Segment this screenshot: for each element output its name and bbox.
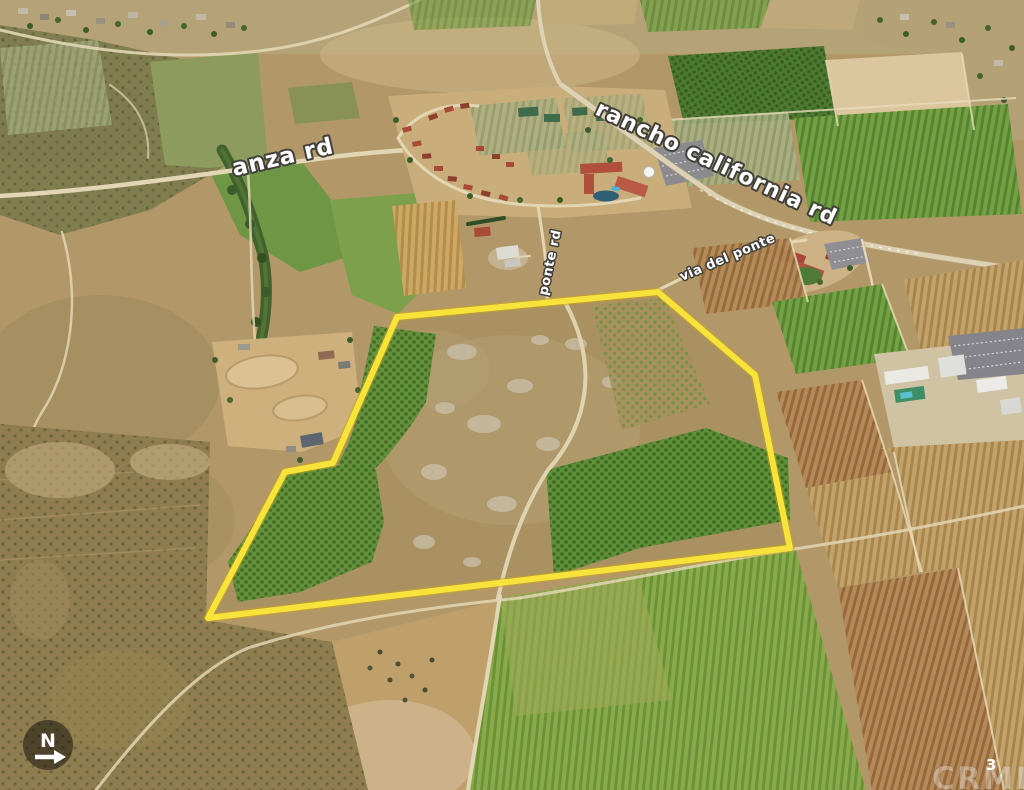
water-tower: [644, 167, 655, 178]
north-compass: N: [23, 720, 73, 770]
photo-page-number: 3: [986, 756, 996, 774]
crmls-watermark: CRMLS: [932, 761, 1024, 790]
watermark: CRMLS 3: [932, 756, 1024, 790]
pond: [593, 191, 619, 202]
aerial-photo-canvas: anza rd rancho california rd ponte rd vi…: [0, 0, 1024, 790]
compass-n-label: N: [40, 730, 56, 752]
aerial-photo: anza rd rancho california rd ponte rd vi…: [0, 0, 1024, 790]
pasture-field-north: [150, 52, 268, 168]
